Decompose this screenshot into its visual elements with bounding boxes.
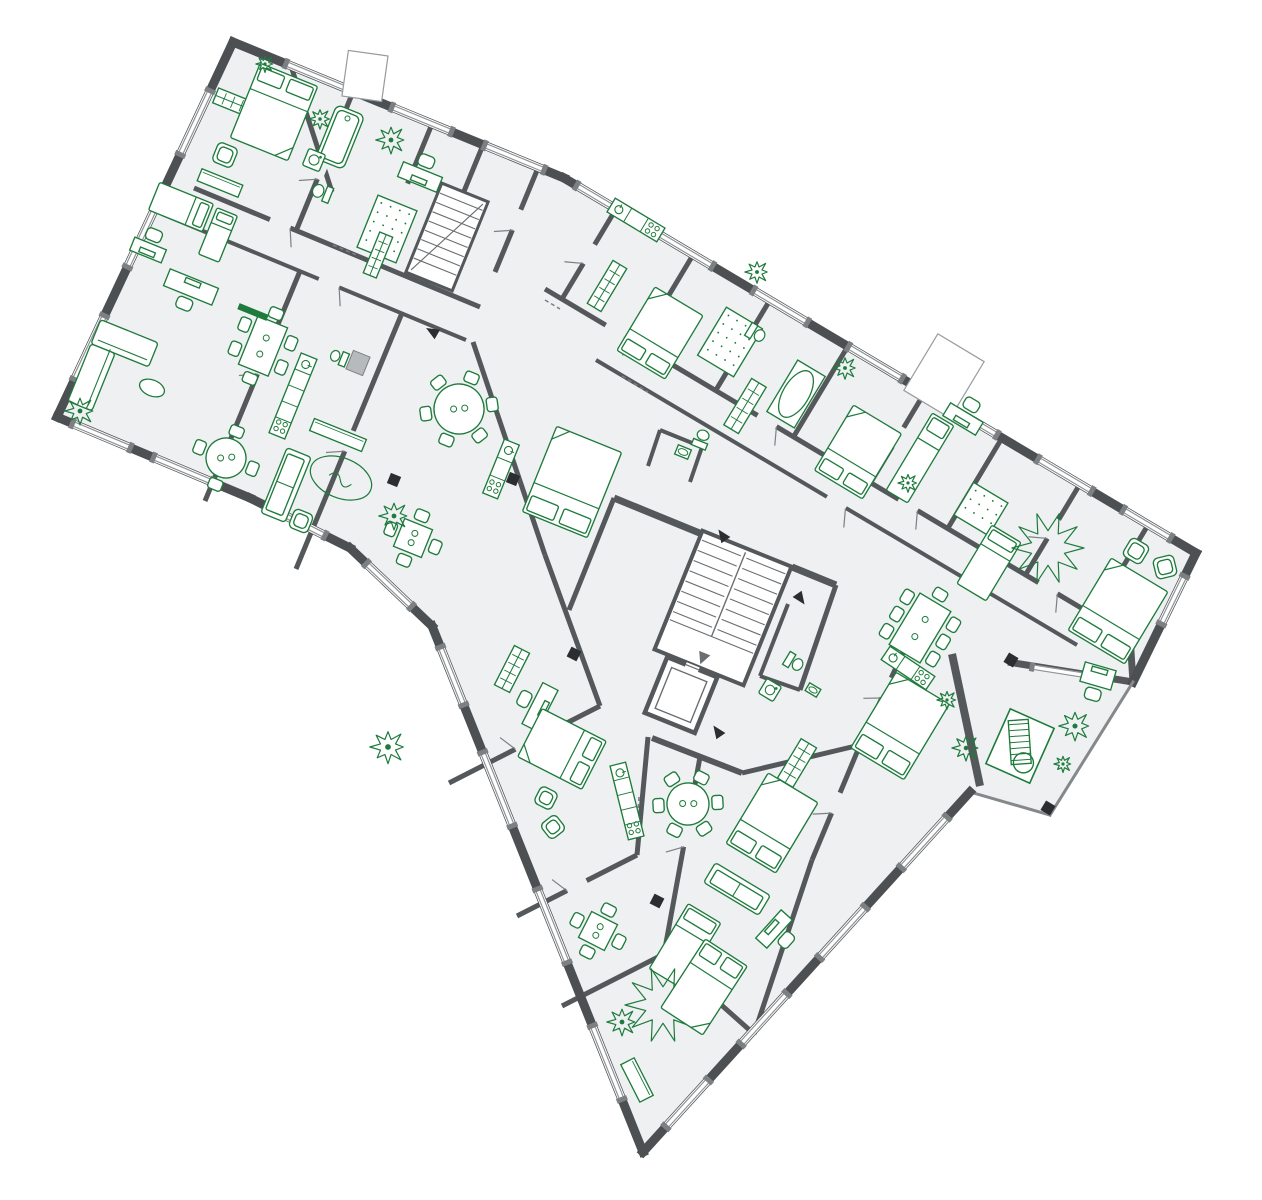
furniture-armchair	[1152, 554, 1177, 579]
shape-rect	[1152, 554, 1177, 579]
plant-center	[1061, 762, 1064, 765]
plant-center	[1072, 723, 1077, 728]
plant-center	[78, 409, 83, 414]
plant-center	[385, 744, 391, 750]
chair	[712, 795, 724, 810]
shape-rect	[712, 795, 724, 810]
plant-center	[389, 138, 394, 143]
door-opening	[684, 825, 688, 847]
shape-rect	[342, 50, 388, 101]
plant-center	[906, 481, 909, 484]
plant-center	[964, 746, 968, 750]
floor-plan-page	[0, 0, 1262, 1200]
chair	[486, 397, 499, 412]
chair	[419, 406, 432, 421]
plant-center	[318, 117, 322, 121]
chair	[653, 798, 665, 813]
floor-plan-svg	[0, 0, 1262, 1200]
plant-center	[843, 366, 847, 370]
roof-shaft	[342, 50, 388, 101]
shape-rect	[653, 798, 665, 813]
plant-center	[620, 1020, 625, 1025]
shape-rect	[486, 397, 499, 412]
plant-center	[263, 62, 266, 65]
plant-center	[945, 698, 948, 701]
plant-center	[392, 514, 397, 519]
shape-rect	[419, 406, 432, 421]
plant-center	[755, 270, 759, 274]
